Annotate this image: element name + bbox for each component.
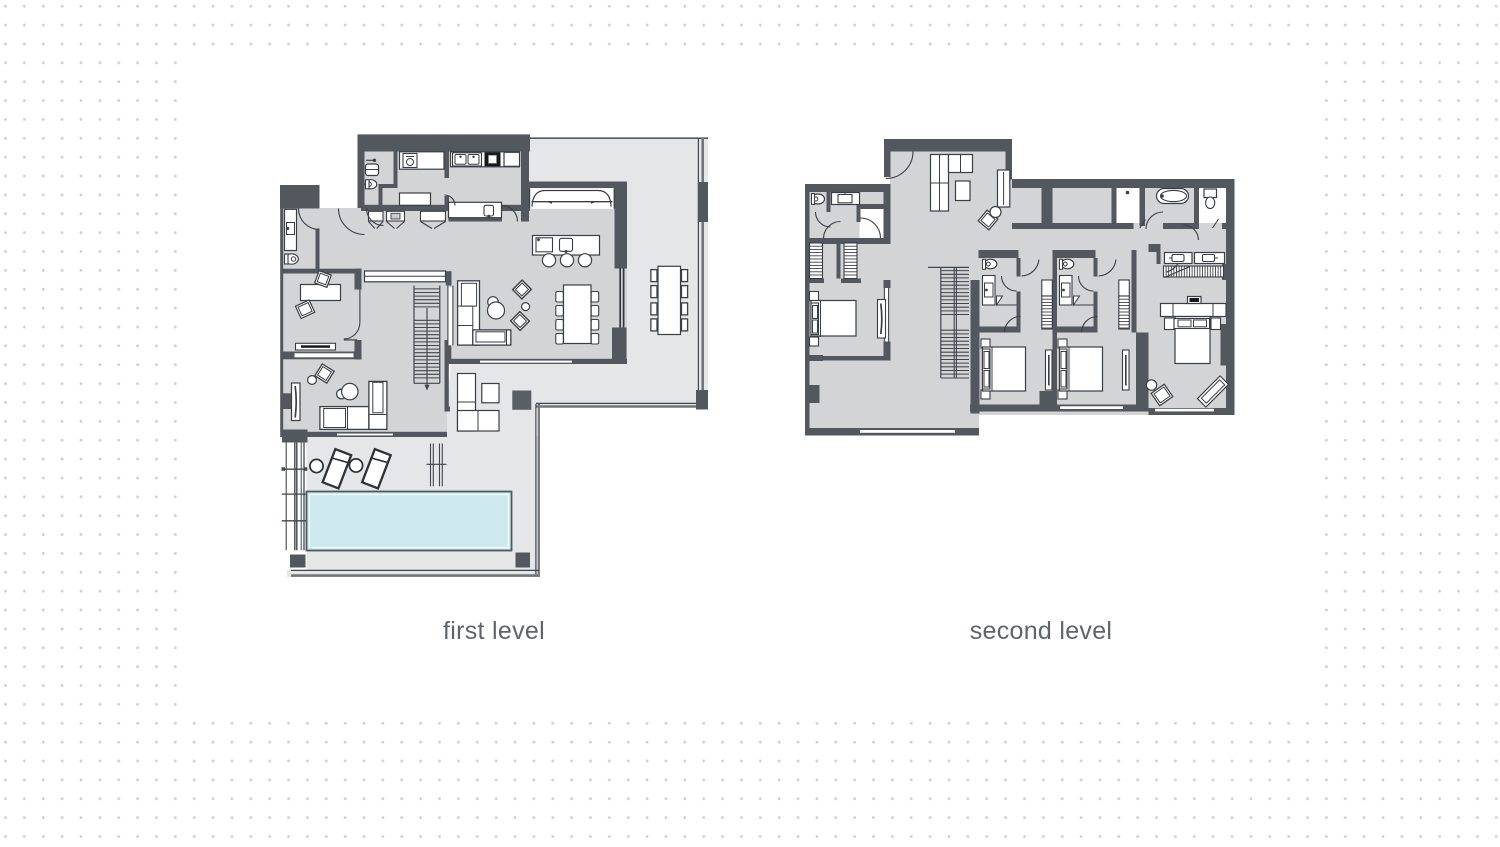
svg-text:first level: first level: [443, 617, 545, 645]
svg-text:second level: second level: [970, 617, 1113, 645]
